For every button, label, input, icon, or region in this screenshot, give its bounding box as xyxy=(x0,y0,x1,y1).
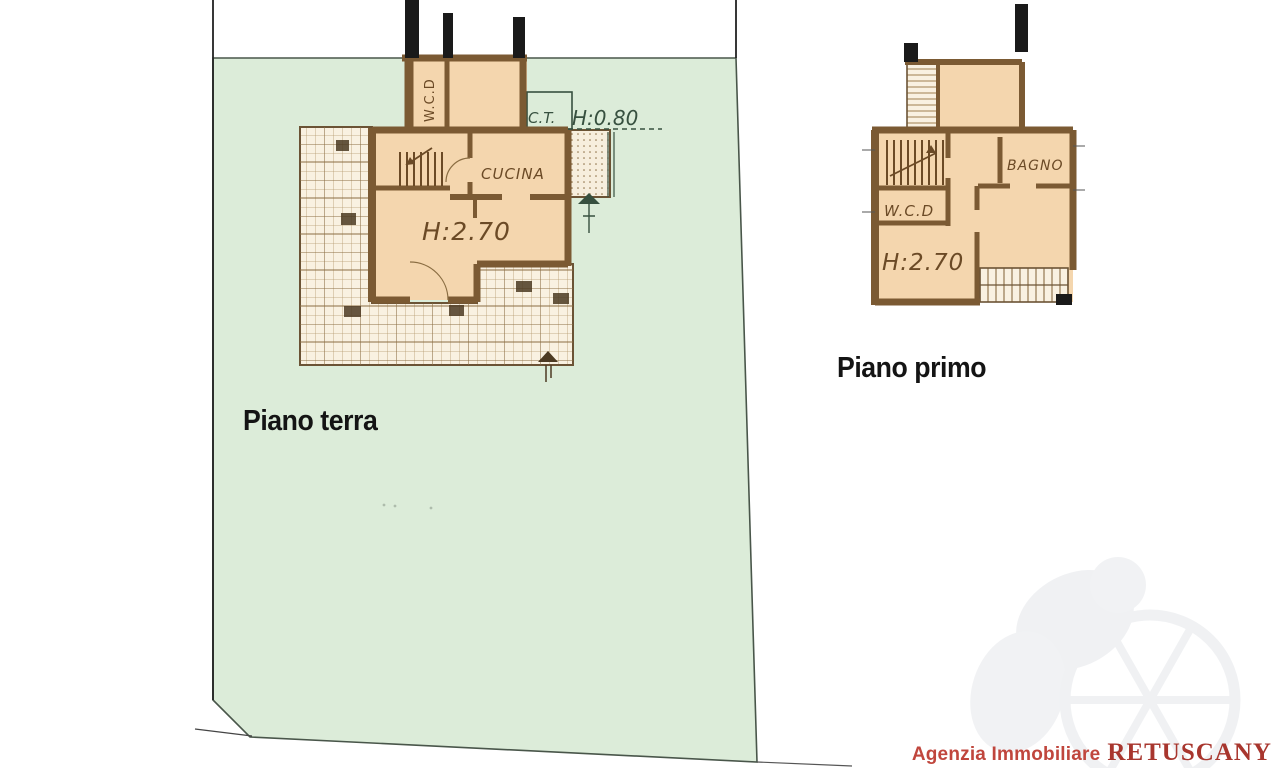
ground-chimney-marks xyxy=(405,0,525,58)
ground-floor-title: Piano terra xyxy=(243,405,377,438)
first-top-room xyxy=(938,62,1022,130)
label-ground-wc: W.C.D xyxy=(423,78,438,122)
agency-prefix: Agenzia Immobiliare xyxy=(912,744,1101,766)
label-ground-room-height: H:2.70 xyxy=(422,217,511,246)
floorplan-canvas: W.C.D C.T. H:0.80 CUCINA H:2.70 xyxy=(0,0,1280,768)
ct-hatched-room xyxy=(568,130,610,197)
first-balcony-corner-mark xyxy=(1056,294,1072,305)
label-ground-ct: C.T. xyxy=(528,109,555,127)
label-first-room-height: H:2.70 xyxy=(882,250,964,276)
floorplan-drawing: W.C.D C.T. H:0.80 CUCINA H:2.70 xyxy=(0,0,1280,768)
label-ground-kitchen: CUCINA xyxy=(481,165,545,183)
label-ground-ct-height: H:0.80 xyxy=(572,106,638,130)
agency-name: RETUSCANY xyxy=(1107,739,1272,767)
first-top-balcony xyxy=(907,63,938,129)
label-first-wc: W.C.D xyxy=(884,202,934,220)
first-chimney-marks xyxy=(904,4,1028,62)
ground-stairs xyxy=(400,148,442,186)
agency-footer: Agenzia Immobiliare RETUSCANY xyxy=(912,739,1272,767)
label-first-bathroom: BAGNO xyxy=(1007,158,1064,174)
watermark-logo xyxy=(955,550,1235,768)
first-floor-title: Piano primo xyxy=(837,352,986,385)
parcel-boundary-extension-right xyxy=(757,762,852,766)
first-floor-plan: BAGNO W.C.D H:2.70 xyxy=(862,4,1085,305)
